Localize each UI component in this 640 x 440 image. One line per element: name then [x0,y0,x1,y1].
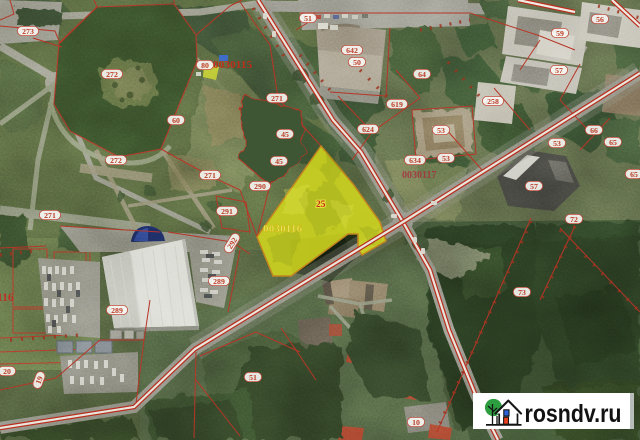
svg-text:rosndv.ru: rosndv.ru [525,400,622,428]
